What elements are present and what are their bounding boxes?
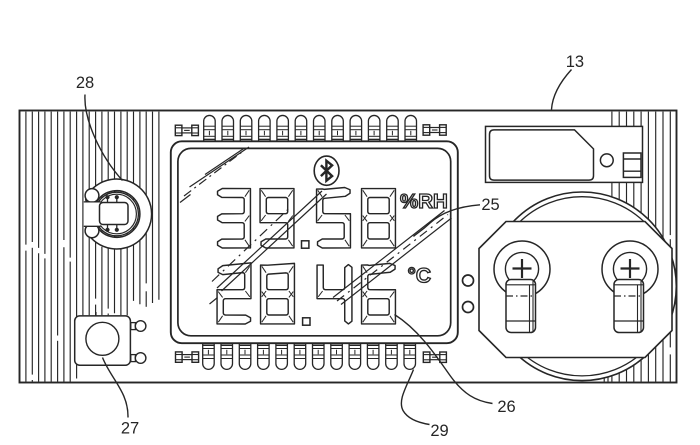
svg-text:26: 26: [497, 398, 515, 416]
svg-text:27: 27: [121, 420, 139, 438]
svg-text:28: 28: [76, 74, 94, 92]
svg-text:29: 29: [430, 422, 448, 440]
svg-text:%RH: %RH: [400, 190, 448, 213]
svg-text:°C: °C: [408, 265, 432, 288]
svg-text:25: 25: [481, 196, 499, 214]
svg-text:13: 13: [566, 53, 584, 71]
